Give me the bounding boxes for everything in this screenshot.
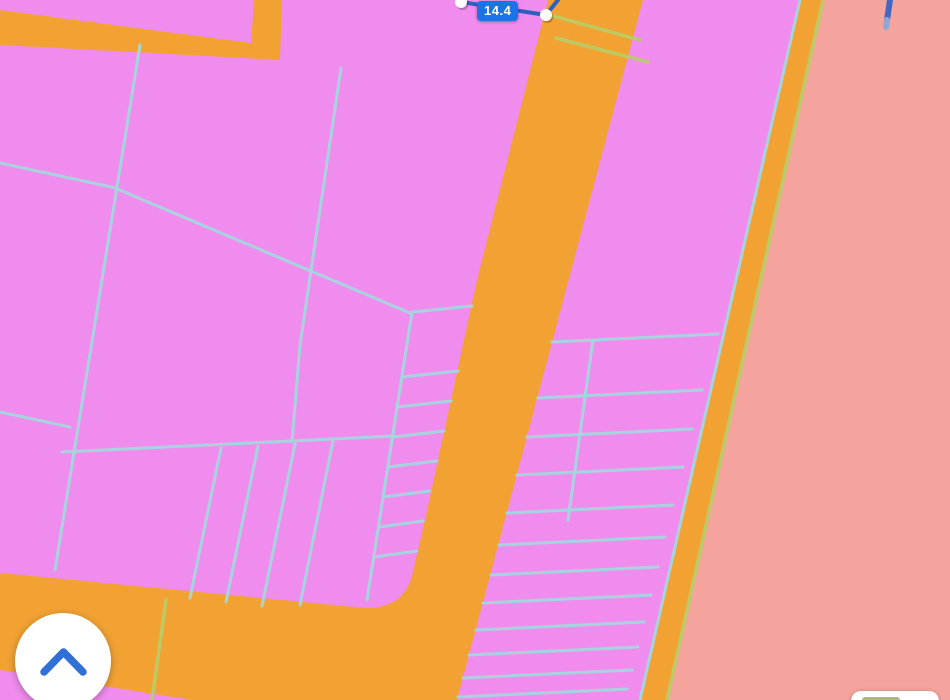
measurement-path-segment (886, 20, 887, 27)
measurement-distance-label: 14.4 (477, 1, 518, 21)
expand-panel-button[interactable] (15, 613, 111, 700)
map-layers-thumbnail[interactable] (851, 691, 939, 700)
chevron-up-icon (15, 613, 111, 700)
measurement-path-segment (887, 0, 890, 20)
measurement-vertex-handle[interactable] (540, 9, 552, 21)
map-canvas[interactable] (0, 0, 950, 700)
map-viewport[interactable]: 14.4 (0, 0, 950, 700)
